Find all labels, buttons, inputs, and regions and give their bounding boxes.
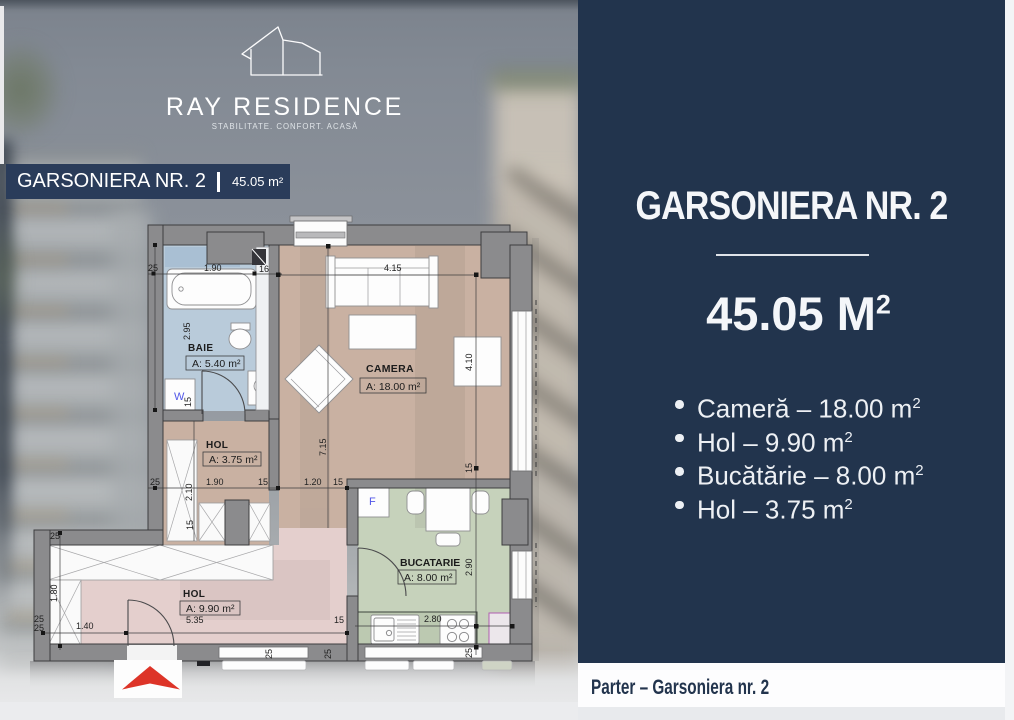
svg-text:4.15: 4.15 [384, 263, 402, 273]
svg-text:7.15: 7.15 [318, 438, 328, 456]
svg-text:2.95: 2.95 [182, 322, 192, 340]
svg-text:25: 25 [264, 649, 274, 659]
svg-text:HOL: HOL [206, 440, 228, 451]
svg-text:1.90: 1.90 [204, 263, 222, 273]
svg-text:15: 15 [258, 477, 268, 487]
svg-text:15: 15 [464, 463, 474, 473]
svg-text:25: 25 [34, 623, 44, 633]
svg-text:15: 15 [333, 477, 343, 487]
svg-text:25: 25 [148, 263, 158, 273]
svg-text:A: 18.00 m²: A: 18.00 m² [366, 381, 421, 393]
svg-text:A: 9.90 m²: A: 9.90 m² [186, 603, 235, 615]
svg-text:A: 5.40 m²: A: 5.40 m² [192, 358, 241, 370]
svg-text:25: 25 [464, 648, 474, 658]
svg-text:25: 25 [150, 477, 160, 487]
svg-text:A: 3.75 m²: A: 3.75 m² [209, 454, 258, 466]
svg-text:25: 25 [323, 649, 333, 659]
svg-text:F: F [369, 496, 376, 508]
svg-text:2.10: 2.10 [184, 483, 194, 501]
svg-text:1.20: 1.20 [304, 477, 322, 487]
svg-text:15: 15 [185, 520, 195, 530]
svg-text:A: 8.00 m²: A: 8.00 m² [404, 572, 453, 584]
svg-text:4.10: 4.10 [464, 353, 474, 371]
svg-text:HOL: HOL [183, 589, 205, 600]
svg-text:1.40: 1.40 [76, 621, 94, 631]
svg-text:1.90: 1.90 [206, 477, 224, 487]
svg-text:15: 15 [183, 397, 193, 407]
svg-text:BUCATARIE: BUCATARIE [400, 557, 460, 569]
svg-text:16: 16 [259, 264, 269, 274]
svg-text:15: 15 [334, 615, 344, 625]
svg-text:1.80: 1.80 [49, 584, 59, 602]
svg-text:BAIE: BAIE [188, 343, 214, 354]
svg-text:5.35: 5.35 [186, 615, 204, 625]
svg-text:CAMERA: CAMERA [366, 363, 414, 375]
svg-text:2.90: 2.90 [464, 558, 474, 576]
svg-text:2.80: 2.80 [424, 614, 442, 624]
svg-text:25: 25 [50, 531, 60, 541]
